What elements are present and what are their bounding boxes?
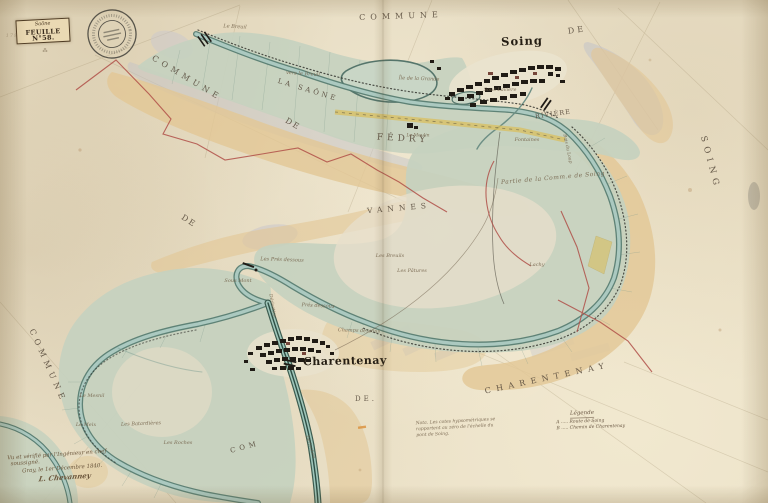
archive-stamp-icon <box>79 1 145 67</box>
label-riviere: RIVIÈRE <box>535 108 572 121</box>
label-de-top-right: DE <box>567 24 586 35</box>
label-fontaines: Fontaines <box>515 137 540 143</box>
label-les-patures: Les Pâtures <box>397 268 427 274</box>
map-labels-layer: COMMUNEDESoingSOINGCOMMUNEDEFÉDRYLA SAÔN… <box>0 0 768 503</box>
label-derivation-1: Dérivation <box>267 294 276 318</box>
label-charentenay-town: Charentenay <box>303 354 387 368</box>
label-commune-top: COMMUNE <box>359 10 443 22</box>
map-canvas: COMMUNEDESoingSOINGCOMMUNEDEFÉDRYLA SAÔN… <box>0 0 768 503</box>
label-champs-dessous: Champs dessous <box>338 327 380 334</box>
label-le-breuil-top: Le Breuil <box>223 23 247 30</box>
label-de-nw: DE <box>284 116 303 132</box>
label-les-batardieres: Les Batardières <box>121 420 161 427</box>
label-le-moulin: Le Moulin <box>406 134 429 139</box>
label-cartouche-mark: ⁂ <box>43 48 48 54</box>
label-le-meix: Le Meix <box>76 422 96 428</box>
label-de-mid: DE <box>180 213 199 229</box>
label-ile-de-la-grande: Île de la Grande <box>399 75 440 82</box>
label-soing-right-edge: SOING <box>698 135 722 191</box>
label-derivation-2: Dérivation <box>304 435 316 459</box>
map-legend: Légende A ..... Route de Soing B ..... C… <box>555 398 625 431</box>
label-com-bottom: COM <box>229 439 260 455</box>
label-le-mesnil: Le Mesnil <box>80 393 105 399</box>
label-charentenay-diag: CHARENTENAY <box>484 360 610 395</box>
label-de-bottom: DE. <box>355 395 377 403</box>
label-partie-comm-soing: Partie de la Comm.e de Soing <box>501 170 606 186</box>
label-les-roches: Les Roches <box>164 440 193 446</box>
label-pres-dessous: Prés dessous <box>301 302 334 310</box>
label-commune-nw: COMMUNE <box>150 54 223 103</box>
label-sous-laviere: Sous Lavière <box>484 87 517 93</box>
label-soing-town: Soing <box>501 33 543 48</box>
map-title-cartouche: Saône FEUILLE N°58. <box>15 18 70 45</box>
cartouche-sheet-number: FEUILLE N°58. <box>17 27 70 43</box>
label-commune-sw: COMMUNE <box>28 328 69 405</box>
label-lachy: Lachy <box>529 262 544 268</box>
legend-title: Légende <box>570 410 594 419</box>
label-les-breuils: Les Breuils <box>376 253 404 259</box>
label-la-saone: LA SAÔNE <box>277 77 339 103</box>
label-vers-le-breuil: vers le Breuil <box>286 70 320 78</box>
label-vannes: VANNES <box>367 201 432 216</box>
label-sous-mont: Sous Mont <box>224 278 251 284</box>
label-bois-du-loup: Bois du Loup <box>561 134 572 164</box>
label-les-pres-dessous: Les Prés dessous <box>260 256 304 264</box>
